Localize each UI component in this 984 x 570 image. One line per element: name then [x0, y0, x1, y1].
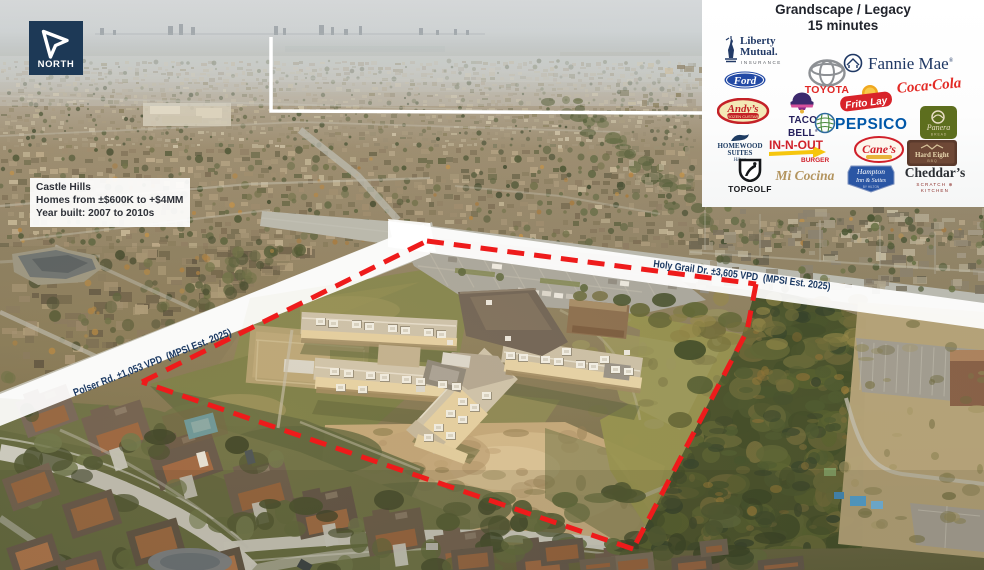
svg-text:BY HILTON: BY HILTON	[863, 185, 880, 189]
svg-text:Panera: Panera	[926, 123, 951, 132]
svg-text:Mi Cocina: Mi Cocina	[775, 168, 835, 183]
svg-text:Coca·Cola: Coca·Cola	[896, 75, 962, 97]
svg-text:B B Q: B B Q	[927, 159, 937, 163]
svg-text:Hampton: Hampton	[856, 167, 885, 176]
svg-text:Cane’s: Cane’s	[862, 142, 896, 156]
svg-text:Ford: Ford	[733, 75, 757, 87]
svg-text:Inn & Suites: Inn & Suites	[855, 178, 887, 184]
svg-text:BURGER: BURGER	[801, 157, 829, 164]
svg-text:B R E A D: B R E A D	[931, 133, 947, 137]
svg-text:FROZEN CUSTARD: FROZEN CUSTARD	[725, 114, 762, 119]
svg-text:Hard Eight: Hard Eight	[915, 151, 950, 159]
svg-text:IN-N-OUT: IN-N-OUT	[769, 138, 824, 152]
